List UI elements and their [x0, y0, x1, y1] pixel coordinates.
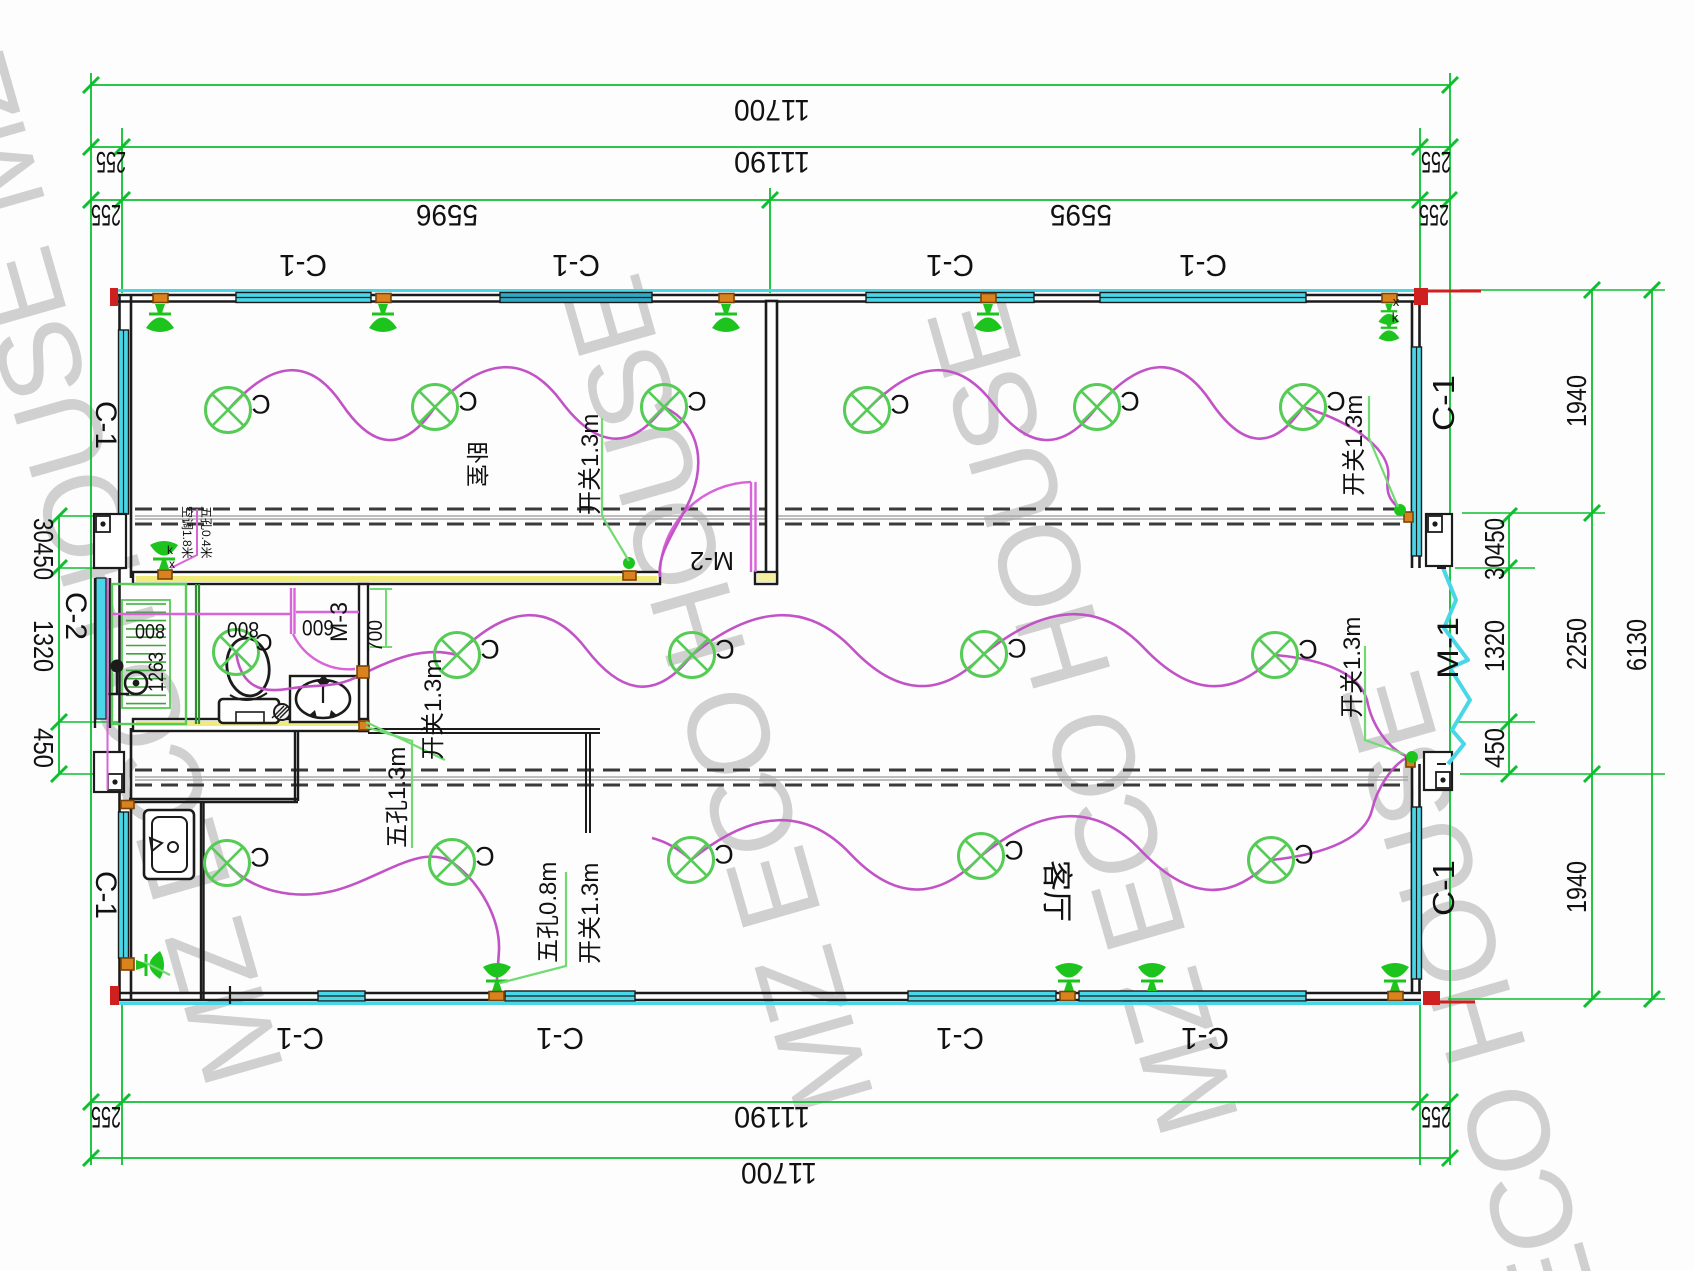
- svg-text:1320: 1320: [28, 620, 59, 672]
- svg-text:C: C: [714, 839, 734, 869]
- svg-text:C-1: C-1: [1179, 248, 1227, 283]
- svg-text:255: 255: [91, 198, 121, 231]
- svg-text:C-1: C-1: [1426, 375, 1461, 431]
- svg-text:C-1: C-1: [552, 248, 600, 283]
- svg-text:五孔0.4米: 五孔0.4米: [199, 506, 213, 559]
- svg-text:C: C: [1004, 835, 1024, 865]
- svg-text:6130: 6130: [1621, 619, 1652, 671]
- svg-text:C-1: C-1: [536, 1021, 584, 1056]
- svg-text:开关1.3m: 开关1.3m: [577, 863, 604, 964]
- svg-text:开关1.3m: 开关1.3m: [1341, 395, 1368, 496]
- svg-text:255: 255: [1421, 1100, 1451, 1133]
- svg-text:C: C: [1007, 633, 1027, 663]
- svg-text:C: C: [250, 842, 270, 872]
- svg-text:C: C: [480, 634, 500, 664]
- svg-text:k: k: [1392, 310, 1399, 325]
- svg-text:255: 255: [91, 1100, 121, 1133]
- svg-text:5596: 5596: [416, 198, 478, 231]
- svg-text:C: C: [458, 386, 478, 416]
- svg-text:11190: 11190: [734, 1100, 810, 1133]
- svg-text:C-1: C-1: [89, 871, 122, 919]
- svg-text:11700: 11700: [741, 1156, 817, 1189]
- svg-text:C-1: C-1: [1181, 1021, 1229, 1056]
- svg-text:C-1: C-1: [276, 1021, 324, 1056]
- svg-text:C-1: C-1: [936, 1021, 984, 1056]
- svg-text:x: x: [169, 557, 175, 571]
- svg-text:1940: 1940: [1561, 375, 1592, 427]
- svg-text:255: 255: [96, 145, 126, 178]
- svg-text:1263: 1263: [145, 652, 168, 692]
- svg-text:11700: 11700: [734, 93, 810, 126]
- svg-text:C: C: [890, 389, 910, 419]
- svg-text:30450: 30450: [1479, 518, 1510, 580]
- svg-text:C: C: [1298, 634, 1318, 664]
- svg-text:5595: 5595: [1050, 198, 1112, 231]
- svg-text:255: 255: [1419, 198, 1449, 231]
- svg-text:M-1: M-1: [1432, 617, 1465, 679]
- svg-text:C-1: C-1: [89, 401, 122, 449]
- svg-text:800: 800: [227, 617, 259, 642]
- svg-text:开关1.3m: 开关1.3m: [577, 414, 604, 515]
- svg-text:五孔0.8m: 五孔0.8m: [535, 862, 562, 963]
- svg-text:C: C: [251, 389, 271, 419]
- svg-text:1940: 1940: [1561, 861, 1592, 913]
- svg-text:C: C: [1120, 386, 1140, 416]
- svg-text:C-1: C-1: [926, 248, 974, 283]
- svg-text:C: C: [1294, 839, 1314, 869]
- svg-text:M-3: M-3: [326, 602, 353, 642]
- svg-text:255: 255: [1421, 145, 1451, 178]
- svg-text:开关1.3m: 开关1.3m: [420, 659, 447, 760]
- svg-text:x: x: [1393, 294, 1400, 309]
- svg-text:客厅: 客厅: [1039, 860, 1074, 922]
- svg-text:五孔1.3m: 五孔1.3m: [384, 747, 411, 848]
- svg-text:800: 800: [135, 619, 165, 642]
- svg-text:C-1: C-1: [279, 248, 327, 283]
- svg-text:C-1: C-1: [1426, 860, 1461, 916]
- svg-text:2250: 2250: [1561, 618, 1592, 670]
- svg-text:M-2: M-2: [690, 546, 734, 576]
- svg-text:空调1.8米: 空调1.8米: [180, 506, 194, 559]
- svg-text:1320: 1320: [1479, 620, 1510, 672]
- svg-text:11190: 11190: [734, 145, 810, 178]
- svg-text:30450: 30450: [28, 518, 59, 580]
- svg-text:C: C: [715, 634, 735, 664]
- svg-text:C-2: C-2: [59, 592, 92, 640]
- svg-text:C: C: [687, 386, 707, 416]
- svg-text:开关1.3m: 开关1.3m: [1339, 617, 1366, 718]
- svg-text:450: 450: [28, 728, 59, 768]
- svg-text:卧室: 卧室: [464, 441, 490, 487]
- svg-text:450: 450: [1479, 728, 1510, 768]
- svg-text:C: C: [475, 841, 495, 871]
- svg-text:k: k: [167, 543, 174, 557]
- svg-text:700: 700: [364, 620, 387, 652]
